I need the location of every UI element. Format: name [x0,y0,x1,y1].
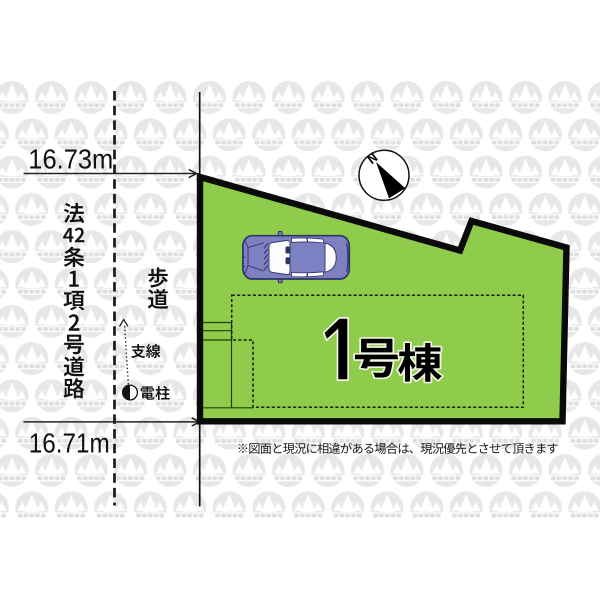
svg-text:16.73m: 16.73m [28,143,113,174]
svg-text:16.71m: 16.71m [29,428,110,459]
